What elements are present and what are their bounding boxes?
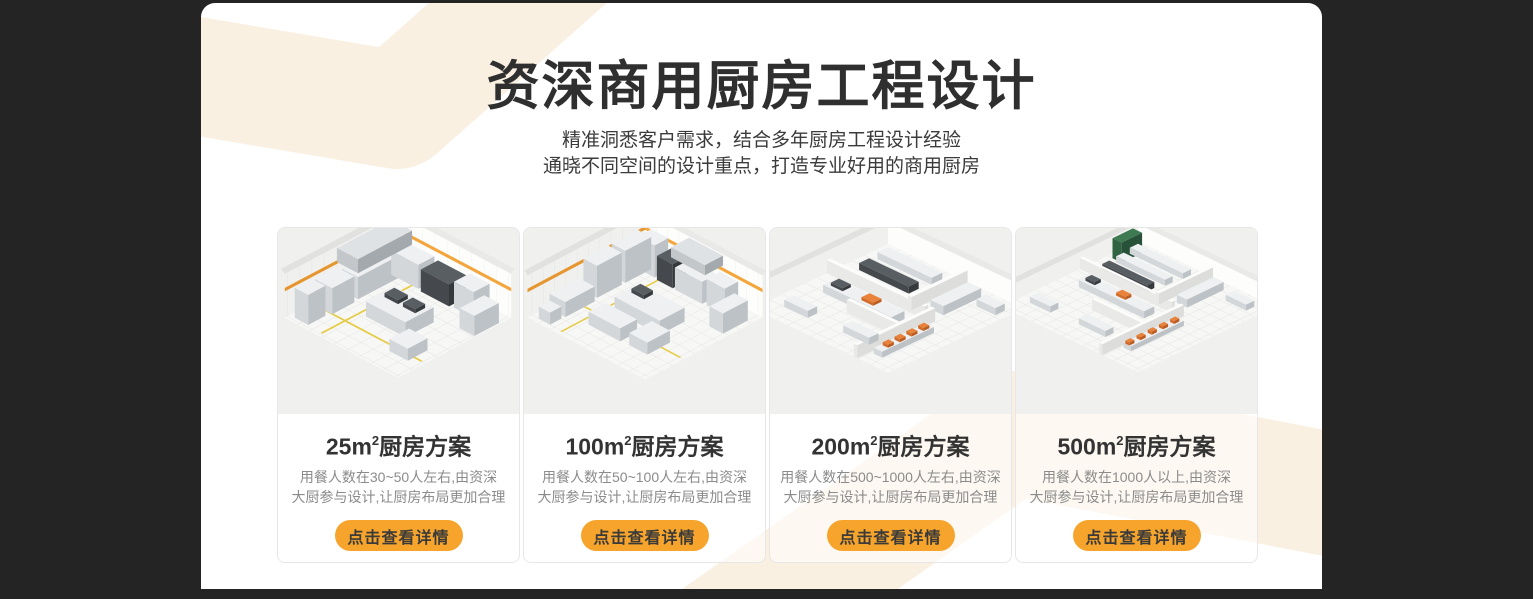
superscript-2: 2 [1116,433,1123,448]
plan-card-title: 25m2厨房方案 [278,429,519,460]
plan-card-200m2[interactable]: 200m2厨房方案 用餐人数在500~1000人左右,由资深大厨参与设计,让厨房… [769,227,1012,563]
plan-card-title: 500m2厨房方案 [1016,429,1257,460]
content-panel: 资深商用厨房工程设计 精准洞悉客户需求，结合多年厨房工程设计经验 通晓不同空间的… [201,3,1322,589]
plan-card-title: 100m2厨房方案 [524,429,765,460]
plan-card-500m2[interactable]: 500m2厨房方案 用餐人数在1000人以上,由资深大厨参与设计,让厨房布局更加… [1015,227,1258,563]
section-header: 资深商用厨房工程设计 精准洞悉客户需求，结合多年厨房工程设计经验 通晓不同空间的… [201,3,1322,182]
plan-card-row: 25m2厨房方案 用餐人数在30~50人左右,由资深大厨参与设计,让厨房布局更加… [277,227,1258,563]
view-details-button[interactable]: 点击查看详情 [1073,520,1201,551]
kitchen-render-25m2 [278,228,519,414]
superscript-2: 2 [372,433,379,448]
plan-card-title: 200m2厨房方案 [770,429,1011,460]
view-details-button[interactable]: 点击查看详情 [827,520,955,551]
plan-card-25m2[interactable]: 25m2厨房方案 用餐人数在30~50人左右,由资深大厨参与设计,让厨房布局更加… [277,227,520,563]
kitchen-render-illustration [770,228,1011,414]
kitchen-render-500m2 [1016,228,1257,414]
subtitle-line-1: 精准洞悉客户需求，结合多年厨房工程设计经验 [201,130,1322,151]
view-details-button[interactable]: 点击查看详情 [581,520,709,551]
section-title: 资深商用厨房工程设计 [201,57,1322,117]
kitchen-render-illustration [524,228,765,414]
kitchen-render-illustration [278,228,519,414]
plan-card-description: 用餐人数在50~100人左右,由资深大厨参与设计,让厨房布局更加合理 [526,467,763,507]
page-background: 资深商用厨房工程设计 精准洞悉客户需求，结合多年厨房工程设计经验 通晓不同空间的… [0,0,1533,599]
view-details-button[interactable]: 点击查看详情 [335,520,463,551]
plan-card-description: 用餐人数在30~50人左右,由资深大厨参与设计,让厨房布局更加合理 [280,467,517,507]
superscript-2: 2 [870,433,877,448]
kitchen-render-illustration [1016,228,1257,414]
superscript-2: 2 [624,433,631,448]
plan-card-description: 用餐人数在500~1000人左右,由资深大厨参与设计,让厨房布局更加合理 [772,467,1009,507]
section-subtitle: 精准洞悉客户需求，结合多年厨房工程设计经验 通晓不同空间的设计重点，打造专业好用… [201,130,1322,177]
subtitle-line-2: 通晓不同空间的设计重点，打造专业好用的商用厨房 [201,156,1322,177]
plan-card-100m2[interactable]: 100m2厨房方案 用餐人数在50~100人左右,由资深大厨参与设计,让厨房布局… [523,227,766,563]
kitchen-render-100m2 [524,228,765,414]
plan-card-description: 用餐人数在1000人以上,由资深大厨参与设计,让厨房布局更加合理 [1018,467,1255,507]
kitchen-render-200m2 [770,228,1011,414]
